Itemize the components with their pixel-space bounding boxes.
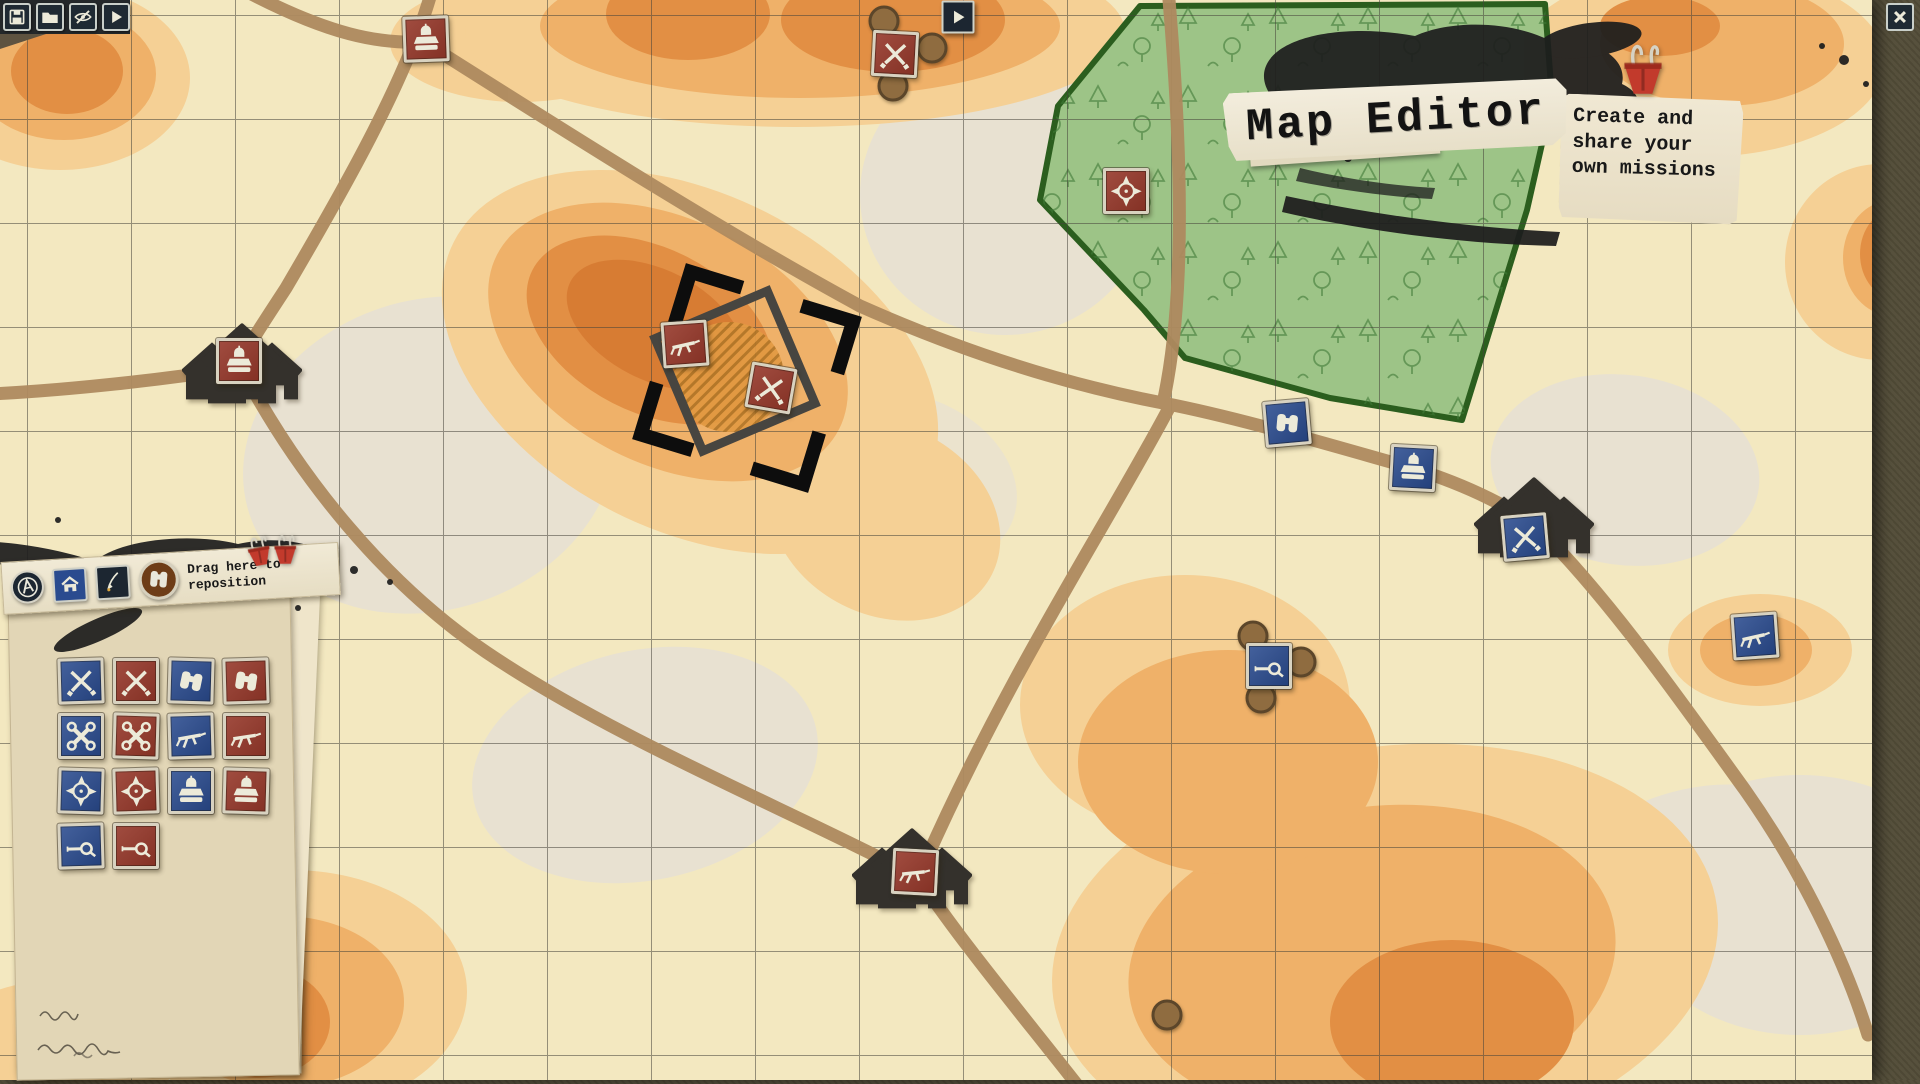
palette-token-support-blue[interactable]	[58, 713, 104, 759]
binoculars-badge-icon[interactable]	[138, 558, 180, 600]
palette-token-mortar-red[interactable]	[112, 767, 159, 814]
play-test-button[interactable]	[102, 3, 130, 31]
binder-clip-icon	[1612, 34, 1674, 110]
mission-start-marker[interactable]	[942, 1, 975, 34]
map-editor-screen: { "window": { "toolbar_buttons": [ {"nam…	[0, 0, 1920, 1080]
palette-token-tank-red[interactable]	[222, 767, 269, 814]
palette-token-tank-blue[interactable]	[168, 768, 214, 814]
pen-tool-icon[interactable]	[95, 564, 131, 600]
close-button[interactable]	[1886, 3, 1914, 31]
palette-token-mg-blue[interactable]	[167, 712, 214, 759]
unit-token-palette	[58, 658, 269, 869]
palette-token-support-red[interactable]	[112, 712, 159, 759]
palette-token-infantry-red[interactable]	[113, 658, 159, 704]
editor-toolbar	[0, 0, 130, 34]
palette-token-mortar-blue[interactable]	[57, 767, 104, 814]
handwritten-scribble	[34, 1004, 164, 1074]
page-title: Map Editor	[1245, 85, 1547, 153]
open-button[interactable]	[36, 3, 64, 31]
map-marker-infantry-red[interactable]	[871, 30, 919, 78]
palette-token-infantry-blue[interactable]	[57, 657, 104, 704]
binder-clip-icon	[238, 530, 281, 576]
note-line: own missions	[1571, 155, 1742, 185]
hq-building-icon[interactable]	[52, 566, 88, 602]
map-marker-mg-red[interactable]	[660, 319, 709, 368]
map-marker-mg-blue[interactable]	[1730, 611, 1779, 660]
toggle-visibility-button[interactable]	[69, 3, 97, 31]
map-marker-infantry-blue[interactable]	[1500, 512, 1550, 562]
unit-palette-panel: Drag here to reposition	[6, 556, 354, 1080]
map-marker-mg-red[interactable]	[891, 848, 939, 896]
save-button[interactable]	[3, 3, 31, 31]
waypoint-marker[interactable]	[917, 33, 948, 64]
palette-token-recon-red[interactable]	[222, 657, 269, 704]
a-compass-icon[interactable]	[10, 570, 45, 605]
map-marker-tank-red[interactable]	[216, 338, 262, 384]
map-marker-mortar-red[interactable]	[1103, 168, 1149, 214]
waypoint-marker[interactable]	[1152, 1000, 1183, 1031]
map-marker-tank-blue[interactable]	[1389, 444, 1437, 492]
map-marker-recon-blue[interactable]	[1262, 398, 1312, 448]
map-marker-tank-red[interactable]	[402, 15, 450, 63]
map-marker-artillery-blue[interactable]	[1246, 643, 1292, 689]
banner-note: Create and share your own missions	[1558, 93, 1743, 224]
palette-token-artillery-blue[interactable]	[57, 822, 104, 869]
palette-token-mg-red[interactable]	[223, 713, 269, 759]
palette-token-recon-blue[interactable]	[167, 657, 214, 704]
map-marker-infantry-red[interactable]	[744, 361, 797, 414]
palette-token-artillery-red[interactable]	[113, 823, 159, 869]
